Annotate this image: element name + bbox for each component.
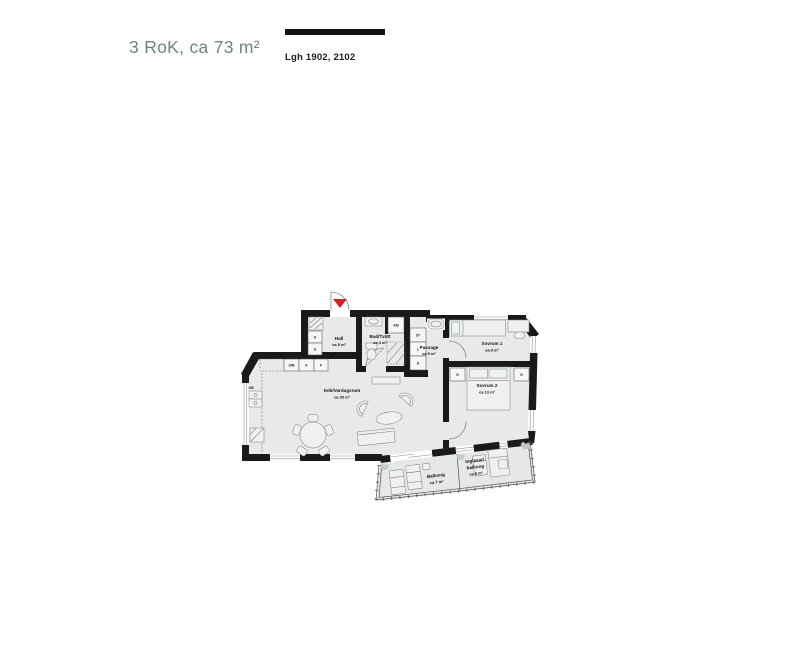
window xyxy=(528,410,536,431)
room-area-kok: ca 35 m² xyxy=(334,395,351,400)
floor-plan-page: 3 RoK, ca 73 m² Lgh 1902, 2102 xyxy=(0,0,810,645)
hall-shelf xyxy=(309,317,323,330)
lounge-chair xyxy=(389,469,406,494)
freezer-label: F xyxy=(320,364,322,368)
entrance-door xyxy=(331,292,349,310)
room-area-hall: ca 5 m² xyxy=(332,342,346,347)
floor-plan: Hall ca 5 m² Bad/Tvätt ca 4 m² Passage c… xyxy=(238,284,550,518)
window xyxy=(499,441,508,449)
oven-microwave-label: U/M xyxy=(289,364,295,368)
window xyxy=(330,454,355,461)
page-title: 3 RoK, ca 73 m² xyxy=(129,37,260,58)
apartment-label: Lgh 1902, 2102 xyxy=(285,52,355,63)
kitchen-sink xyxy=(249,391,262,407)
window xyxy=(270,454,300,461)
entrance-threshold xyxy=(330,310,350,317)
room-label-sovrum2: Sovrum 2 xyxy=(477,383,498,388)
window xyxy=(530,336,538,353)
room-label-bad-tvatt: Bad/Tvätt xyxy=(370,334,391,339)
side-table xyxy=(422,463,430,470)
header-rule xyxy=(285,29,385,35)
lounge-chair xyxy=(406,464,423,489)
sideboard xyxy=(372,377,400,384)
cleaning-closet-label: ST xyxy=(416,334,420,338)
room-area-sovrum1: ca 8 m² xyxy=(485,348,499,353)
room-label-kok: Kök/Vardagsrum xyxy=(324,388,361,393)
washing-machine-label: KM xyxy=(394,324,399,328)
toilet xyxy=(366,343,377,360)
double-bed xyxy=(467,367,510,410)
room-label-hall: Hall xyxy=(335,336,343,341)
stove xyxy=(250,428,264,442)
room-label-passage: Passage xyxy=(420,345,439,350)
room-area-sovrum2: ca 13 m² xyxy=(479,390,496,395)
lounge-sofa xyxy=(488,448,510,477)
room-area-bad-tvatt: ca 4 m² xyxy=(373,340,387,345)
bathroom-sink xyxy=(365,317,382,326)
single-bed xyxy=(450,320,506,336)
entrance-arrow-icon xyxy=(333,299,347,308)
room-area-passage: ca 5 m² xyxy=(422,351,436,356)
room-label-sovrum1: Sovrum 1 xyxy=(482,341,503,346)
dishwasher-label: DM xyxy=(249,386,254,390)
passage-basin xyxy=(427,319,445,331)
linen-closet-label: L xyxy=(417,348,419,352)
window xyxy=(242,383,249,445)
